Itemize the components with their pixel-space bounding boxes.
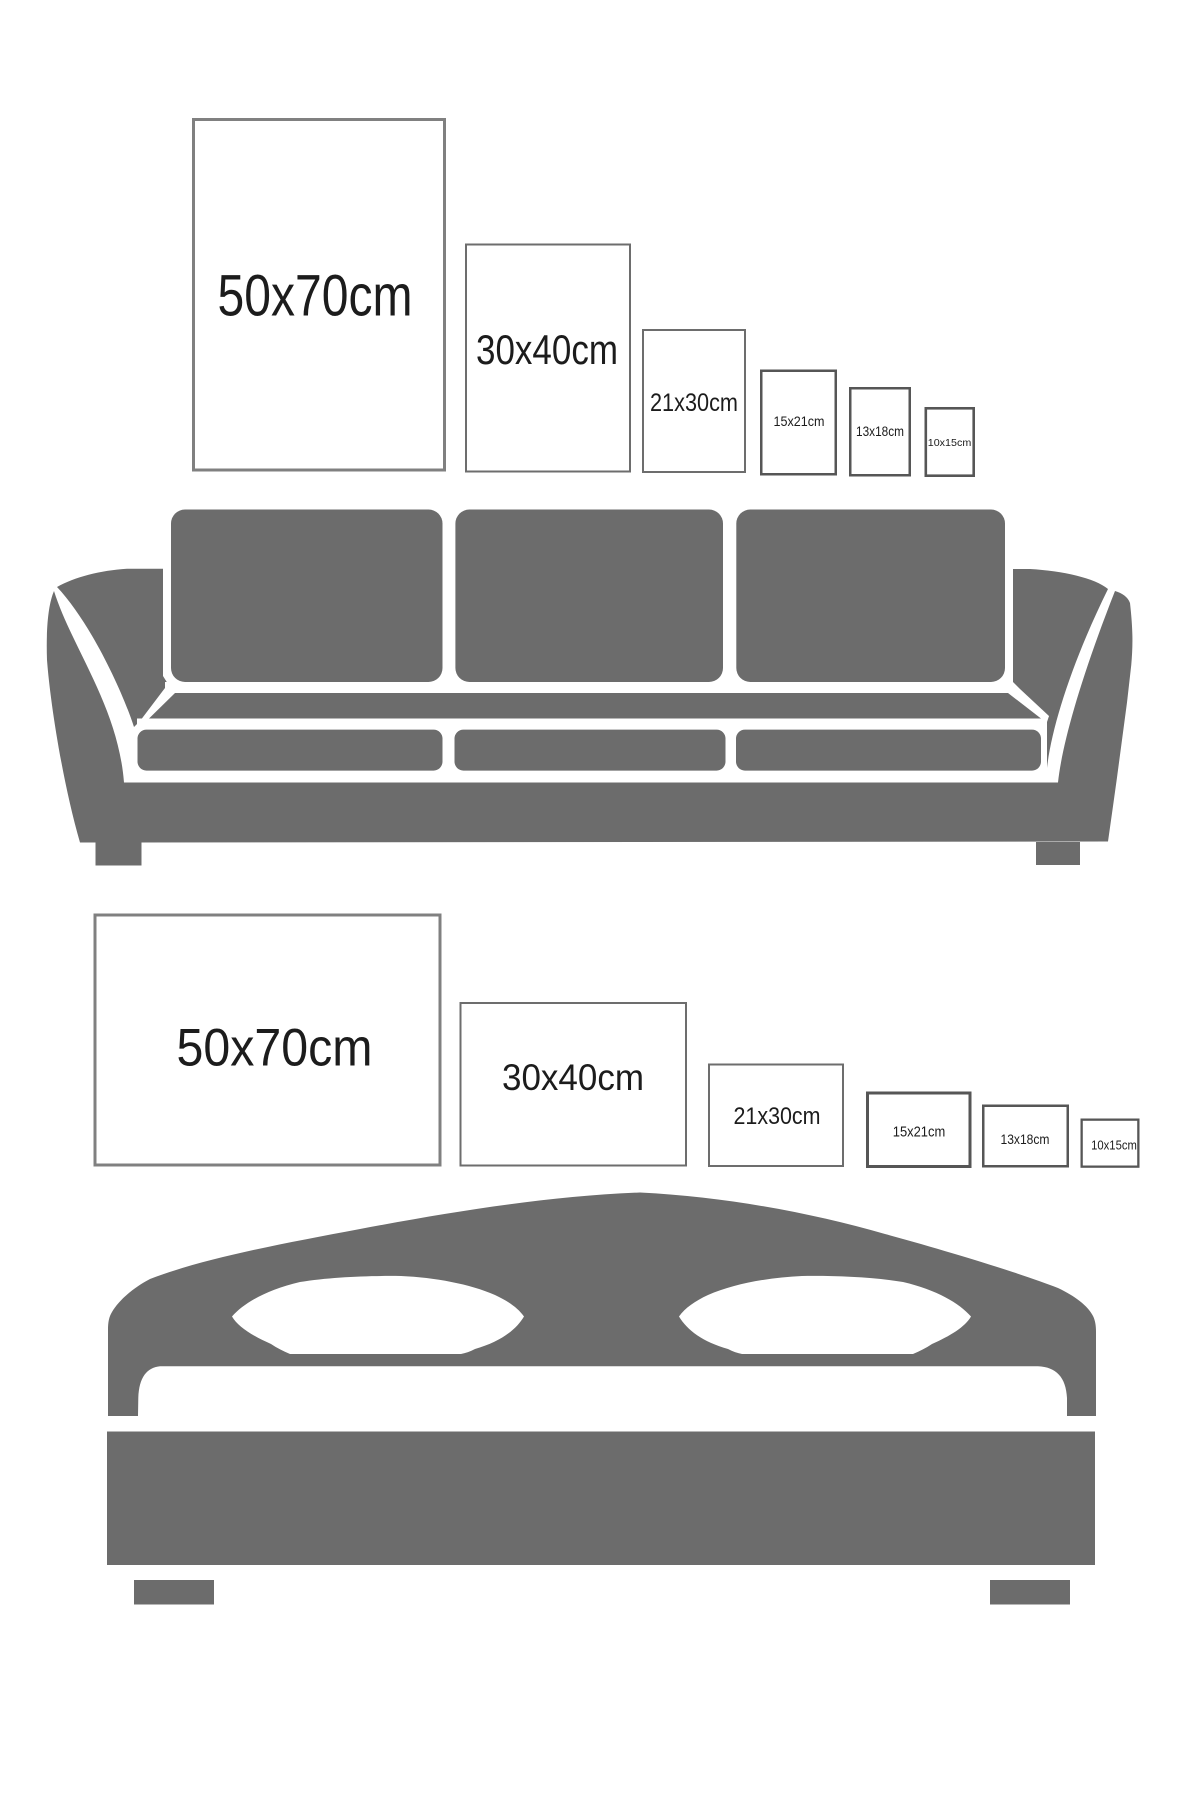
svg-text:50x70cm: 50x70cm — [218, 264, 413, 329]
svg-text:15x21cm: 15x21cm — [893, 1124, 946, 1141]
svg-text:21x30cm: 21x30cm — [734, 1103, 821, 1130]
svg-text:30x40cm: 30x40cm — [476, 326, 618, 373]
svg-text:13x18cm: 13x18cm — [1001, 1132, 1050, 1147]
svg-text:13x18cm: 13x18cm — [856, 423, 904, 439]
svg-text:50x70cm: 50x70cm — [177, 1019, 373, 1078]
svg-text:10x15cm: 10x15cm — [928, 437, 972, 449]
svg-text:10x15cm: 10x15cm — [1091, 1138, 1137, 1153]
svg-text:15x21cm: 15x21cm — [774, 413, 825, 429]
svg-text:21x30cm: 21x30cm — [650, 389, 738, 417]
svg-text:30x40cm: 30x40cm — [502, 1057, 644, 1098]
